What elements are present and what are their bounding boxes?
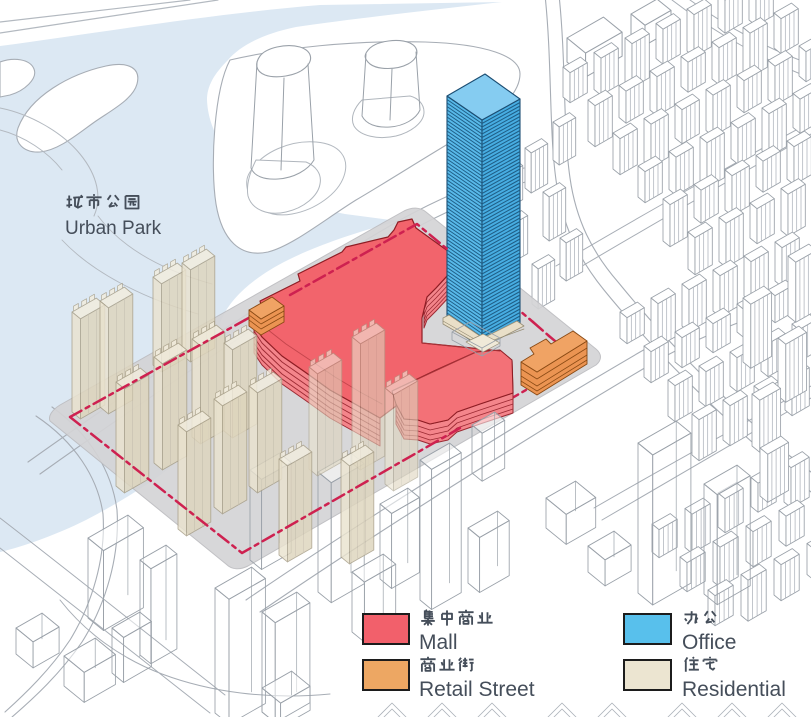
svg-text:Mall: Mall: [419, 631, 458, 654]
svg-text:Retail Street: Retail Street: [419, 678, 535, 701]
svg-text:Residential: Residential: [682, 678, 786, 701]
svg-text:Urban Park: Urban Park: [65, 218, 162, 239]
svg-text:Office: Office: [682, 631, 736, 654]
